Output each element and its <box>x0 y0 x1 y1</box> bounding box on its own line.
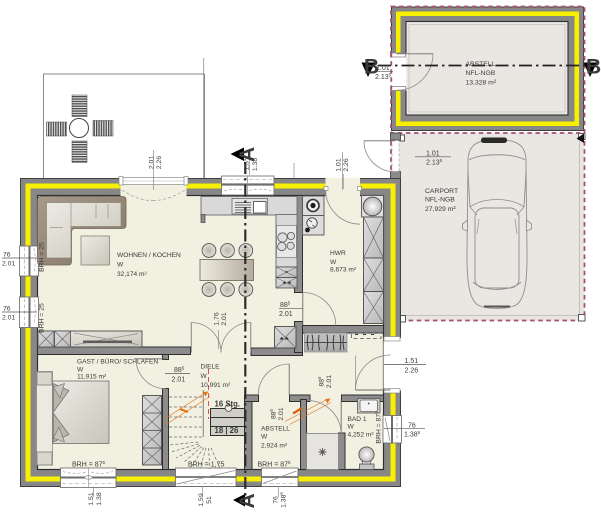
svg-text:A: A <box>236 147 259 162</box>
svg-text:ABSTELL: ABSTELL <box>261 426 290 433</box>
svg-text:1.385: 1.385 <box>404 430 421 439</box>
svg-text:2.01: 2.01 <box>2 261 15 268</box>
svg-text:76: 76 <box>3 306 11 313</box>
svg-text:2.01: 2.01 <box>278 407 285 420</box>
svg-text:2.01: 2.01 <box>221 312 228 325</box>
svg-text:HWR: HWR <box>330 250 346 257</box>
svg-text:B: B <box>586 56 601 79</box>
svg-text:32,174 m²: 32,174 m² <box>117 271 147 278</box>
svg-text:2.01: 2.01 <box>279 311 293 318</box>
svg-text:2.01: 2.01 <box>149 156 156 169</box>
svg-text:8,673 m²: 8,673 m² <box>330 267 357 274</box>
svg-text:76: 76 <box>273 496 280 504</box>
svg-text:GAST / BÜRO/ SCHLAFEN: GAST / BÜRO/ SCHLAFEN <box>77 358 158 366</box>
svg-text:2.01: 2.01 <box>326 375 333 388</box>
svg-text:11,915 m²: 11,915 m² <box>77 374 107 381</box>
svg-text:51: 51 <box>206 496 213 504</box>
svg-text:A: A <box>236 493 259 508</box>
svg-text:BRH = 25: BRH = 25 <box>39 242 46 272</box>
svg-text:ABSTELL: ABSTELL <box>466 61 496 68</box>
svg-text:W: W <box>348 424 355 431</box>
svg-text:2,924 m²: 2,924 m² <box>261 443 288 450</box>
svg-text:NFL-NGB: NFL-NGB <box>425 197 455 204</box>
svg-text:1.51: 1.51 <box>405 358 419 365</box>
svg-text:BRH = 875: BRH = 875 <box>72 460 106 469</box>
svg-text:WOHNEN / KOCHEN: WOHNEN / KOCHEN <box>117 252 181 259</box>
svg-text:CARPORT: CARPORT <box>425 188 458 195</box>
svg-text:BRH = 1,75: BRH = 1,75 <box>188 462 224 469</box>
svg-text:1.385: 1.385 <box>279 492 288 508</box>
svg-text:76: 76 <box>3 252 11 259</box>
svg-text:1.38: 1.38 <box>96 492 103 505</box>
svg-text:1.76: 1.76 <box>214 312 221 325</box>
svg-text:4,252 m²: 4,252 m² <box>348 432 375 439</box>
svg-text:B: B <box>364 56 379 79</box>
svg-text:BRH = 875: BRH = 875 <box>374 411 383 444</box>
svg-text:W: W <box>77 367 84 374</box>
svg-text:2.26: 2.26 <box>156 156 163 169</box>
svg-text:13,328 m²: 13,328 m² <box>466 80 497 87</box>
svg-text:2.26: 2.26 <box>343 158 350 171</box>
svg-text:BRH = 875: BRH = 875 <box>258 460 292 469</box>
svg-text:10,991 m²: 10,991 m² <box>201 382 231 389</box>
svg-text:BAD 1: BAD 1 <box>348 416 367 423</box>
svg-text:1.51: 1.51 <box>88 492 95 505</box>
svg-text:27,929 m²: 27,929 m² <box>425 206 456 213</box>
svg-text:W: W <box>261 434 268 441</box>
svg-text:2.26: 2.26 <box>405 368 419 375</box>
svg-text:W: W <box>117 262 124 269</box>
svg-text:BRH = 25: BRH = 25 <box>39 303 46 333</box>
svg-text:DIELE: DIELE <box>201 364 221 371</box>
svg-text:1.01: 1.01 <box>336 158 343 171</box>
svg-text:18 | 26: 18 | 26 <box>215 426 240 435</box>
svg-text:16 Stg.: 16 Stg. <box>215 400 241 409</box>
svg-text:1,59: 1,59 <box>198 493 205 506</box>
svg-text:NFL-NGB: NFL-NGB <box>466 70 496 77</box>
svg-text:W: W <box>330 259 337 266</box>
svg-text:2.01: 2.01 <box>2 315 15 322</box>
svg-text:2.01: 2.01 <box>172 377 186 384</box>
svg-text:W: W <box>201 373 208 380</box>
